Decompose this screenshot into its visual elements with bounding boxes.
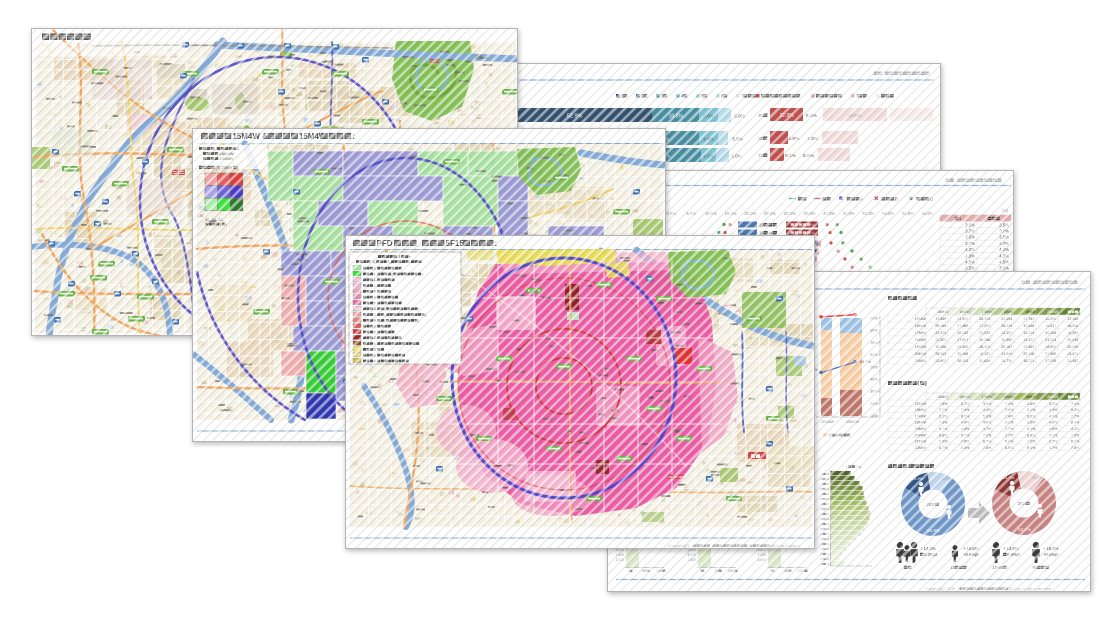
svg-text:6.5%: 6.5% [1071,440,1080,444]
svg-text:-40: -40 [198,214,203,218]
svg-text:2.7%: 2.7% [1049,440,1058,444]
svg-text:7.3%: 7.3% [807,136,819,142]
svg-text:24,894: 24,894 [1001,317,1012,321]
svg-text:500: 500 [714,569,720,573]
svg-text:26,129: 26,129 [979,317,990,321]
svg-text:7.8%: 7.8% [1071,402,1080,406]
svg-text:35.0%: 35.0% [803,211,815,216]
svg-text:7.4%: 7.4% [1005,408,1014,412]
svg-text:8.5%: 8.5% [1027,446,1036,450]
svg-text:C: C [930,197,934,202]
svg-text:4.7%: 4.7% [1049,446,1058,450]
svg-text:1000: 1000 [728,569,735,573]
svg-text:): ) [422,272,423,276]
svg-text:(: ( [917,381,919,387]
svg-text:4.0%: 4.0% [1049,414,1058,418]
svg-text:(: ( [846,465,848,469]
svg-text:B: B [895,197,898,202]
svg-text:65.9%: 65.9% [927,528,940,533]
svg-text:1.: 1. [374,278,377,282]
svg-text:24: 24 [826,492,830,496]
svg-text:0.9%pt: 0.9%pt [1007,552,1021,557]
svg-text:40.0%: 40.0% [823,211,835,216]
svg-text:24: 24 [826,532,830,536]
svg-text:1000: 1000 [656,569,663,573]
svg-text:2.: 2. [374,330,377,334]
svg-text:2.: 2. [374,336,377,340]
svg-text:8.5%: 8.5% [1027,421,1036,425]
svg-text:17M4W: 17M4W [915,414,928,418]
svg-text:9.7%: 9.7% [983,427,992,431]
svg-text:7.2%: 7.2% [1027,440,1036,444]
svg-text:52.9%: 52.9% [567,114,583,120]
svg-text:24,229: 24,229 [979,331,990,335]
svg-text:21M4W: 21M4W [915,440,928,444]
svg-text:6.7%: 6.7% [939,446,948,450]
svg-text:12,242: 12,242 [957,331,968,335]
svg-text:30%: 30% [870,390,878,394]
svg-text:21,914: 21,914 [957,317,968,321]
svg-text:8.: 8. [374,325,377,329]
svg-text:22,692: 22,692 [935,359,946,363]
svg-text:16,517: 16,517 [1045,324,1056,328]
svg-text:4.3%: 4.3% [999,253,1009,258]
svg-text:2.7%: 2.7% [1071,414,1080,418]
svg-text:7.7%: 7.7% [1005,427,1014,431]
svg-text:5.0%: 5.0% [686,211,696,216]
svg-text:5.4%: 5.4% [806,113,818,119]
svg-text:16M4W: 16M4W [915,408,928,412]
svg-text:4.6%: 4.6% [983,421,992,425]
svg-text:5.9%: 5.9% [732,137,742,142]
svg-text:11,260: 11,260 [1045,317,1056,321]
svg-text:0.0%: 0.0% [667,211,677,216]
svg-text:5.6%: 5.6% [803,153,815,159]
svg-text:3.5%: 3.5% [965,235,975,240]
svg-text:25.0%: 25.0% [764,211,776,216]
svg-text:7.3%: 7.3% [939,421,948,425]
svg-text:20: 20 [758,153,764,159]
svg-text:11,824: 11,824 [979,359,990,363]
svg-text:62.1%: 62.1% [1018,527,1031,532]
svg-text:6.: 6. [374,354,377,358]
svg-text:60%: 60% [870,353,878,357]
svg-text:30: 30 [758,136,764,142]
svg-text:3: 3 [908,464,911,470]
svg-text:17M4W: 17M4W [915,331,928,335]
svg-text:+0.5%pt: +0.5%pt [1043,552,1059,557]
svg-text:4.2%: 4.2% [965,247,975,252]
svg-text:18.3%: 18.3% [669,114,684,120]
svg-text:18,286: 18,286 [1067,324,1078,328]
svg-text:4.: 4. [374,359,377,363]
svg-text:5,000: 5,000 [758,553,766,557]
svg-text:7.4%: 7.4% [961,408,970,412]
svg-text:15,249: 15,249 [1067,338,1078,342]
svg-text:24: 24 [826,507,830,511]
svg-text:2.4%: 2.4% [939,440,948,444]
svg-text:4.8%: 4.8% [961,427,970,431]
svg-text:24: 24 [826,497,830,501]
svg-text:24: 24 [826,482,830,486]
svg-text:21,524: 21,524 [1045,338,1056,342]
svg-text:10,848: 10,848 [1023,324,1034,328]
svg-text:3.7%: 3.7% [999,241,1009,246]
svg-text:3.7%: 3.7% [965,241,975,246]
svg-text:24: 24 [826,537,830,541]
svg-text:24: 24 [826,517,830,521]
svg-text:4.0%: 4.0% [1049,421,1058,425]
svg-text:27,204: 27,204 [979,324,990,328]
svg-text:3.5%: 3.5% [999,222,1009,227]
svg-text:+ 14.3%: + 14.3% [920,546,936,551]
svg-text:6.5%: 6.5% [1005,446,1014,450]
svg-text:13,480: 13,480 [1067,317,1078,321]
svg-text:15,158: 15,158 [957,352,968,356]
svg-text:500: 500 [642,569,648,573]
svg-text:27,997: 27,997 [957,338,968,342]
svg-text:25,989: 25,989 [935,324,946,328]
svg-text:4.7%: 4.7% [961,433,970,437]
svg-text:20.0%: 20.0% [744,211,756,216]
svg-text:7.1%: 7.1% [1049,433,1058,437]
svg-text:14.9%: 14.9% [1003,475,1015,480]
svg-text:10,314: 10,314 [1023,331,1034,335]
svg-text:17,764: 17,764 [1023,317,1034,321]
svg-text:2.1%: 2.1% [939,414,948,418]
svg-text:1.: 1. [374,272,377,276]
svg-text:4.4%: 4.4% [1049,408,1058,412]
svg-text:+0.6%pt: +0.6%pt [963,552,979,557]
svg-text:(%): (%) [1001,208,1008,213]
svg-text:16,221: 16,221 [1023,359,1034,363]
svg-text:9.6%: 9.6% [1049,427,1058,431]
svg-text:3.4%: 3.4% [983,408,992,412]
svg-text:15,396: 15,396 [1067,331,1078,335]
svg-text:20,408: 20,408 [957,345,968,349]
svg-text:19M4W: 19M4W [915,427,928,431]
svg-text:8.0%: 8.0% [961,414,970,418]
svg-text:8.0%: 8.0% [703,114,713,119]
svg-text:7.9%: 7.9% [1071,433,1080,437]
svg-text:3.3%: 3.3% [1049,402,1058,406]
svg-text:24: 24 [826,542,830,546]
svg-text:15: 15 [828,434,832,438]
svg-text::: : [748,544,749,548]
svg-text:20M4W: 20M4W [915,433,928,437]
svg-text:14.9%: 14.9% [912,476,924,481]
svg-text::: : [710,544,711,548]
svg-text:24: 24 [826,562,830,566]
svg-text:6.: 6. [374,307,377,311]
svg-text:14,101: 14,101 [1001,331,1012,335]
svg-text:24: 24 [826,557,830,561]
svg-text:20,167: 20,167 [1001,345,1012,349]
svg-text:45.0%: 45.0% [843,211,855,216]
svg-text:22.9%: 22.9% [780,113,795,119]
svg-text:20M4W: 20M4W [915,352,928,356]
svg-text:18,859: 18,859 [935,317,946,321]
svg-text:24: 24 [826,547,830,551]
svg-text:4.5%: 4.5% [999,260,1009,265]
svg-text:6.4%: 6.4% [1027,427,1036,431]
svg-text:9.1%: 9.1% [703,154,713,159]
svg-text:10.5%: 10.5% [848,113,862,119]
svg-text:4.1%: 4.1% [1071,427,1080,431]
svg-text::3: :3 [397,254,400,259]
svg-text:4.: 4. [374,319,377,323]
svg-text:9.1%: 9.1% [785,153,797,159]
svg-text:27,906: 27,906 [1045,352,1056,356]
svg-text:24: 24 [826,527,830,531]
svg-text:20%: 20% [870,402,878,406]
svg-text:7.2%: 7.2% [939,408,948,412]
svg-text:5.: 5. [374,301,377,305]
svg-text:20M4W: 20M4W [846,420,859,424]
svg-text:24: 24 [826,502,830,506]
svg-text:9.6%: 9.6% [1027,414,1036,418]
svg-text:3.7%: 3.7% [999,229,1009,234]
svg-text:10%: 10% [870,414,878,418]
svg-text:15,738: 15,738 [1001,359,1012,363]
svg-text:+ 16.8%: + 16.8% [1043,546,1059,551]
svg-text:15M4W &: 15M4W & [232,132,268,141]
svg-text:3.5%: 3.5% [999,266,1009,271]
svg-text:40: 40 [758,113,764,119]
svg-text:3.7%: 3.7% [1005,433,1014,437]
svg-text:15M4W: 15M4W [821,420,834,424]
svg-text:20,289: 20,289 [1067,345,1078,349]
svg-text:9.2%: 9.2% [942,476,952,481]
svg-text:24: 24 [826,487,830,491]
svg-text:16,286: 16,286 [979,338,990,342]
svg-text:19M4W: 19M4W [915,345,928,349]
svg-text:7.8%: 7.8% [961,440,970,444]
svg-text:16,492: 16,492 [1001,338,1012,342]
svg-text:3.2%: 3.2% [1005,421,1014,425]
svg-text:4.: 4. [374,296,377,300]
svg-text:15M4W: 15M4W [915,317,928,321]
svg-text:All rights reserved.: All rights reserved. [771,544,801,548]
svg-text:22,263: 22,263 [935,331,946,335]
svg-text:17,939: 17,939 [1045,359,1056,363]
svg-text:24: 24 [826,552,830,556]
svg-text:7.8%: 7.8% [939,402,948,406]
svg-text:6.7%: 6.7% [961,402,970,406]
svg-text:28,355: 28,355 [1001,324,1012,328]
svg-text:21M4W: 21M4W [915,359,928,363]
svg-text:12.8%: 12.8% [786,136,800,142]
svg-text:2,000: 2,000 [758,558,766,562]
svg-text:7.5%: 7.5% [983,446,992,450]
svg-text:7.4%: 7.4% [1005,402,1014,406]
svg-text:2015: 2015 [927,502,937,507]
svg-text:24: 24 [826,522,830,526]
svg-text:(/0.25km: (/0.25km [215,165,232,170]
svg-text:15M4W: 15M4W [915,402,928,406]
svg-text:4.7%: 4.7% [939,427,948,431]
svg-text:30.0%: 30.0% [784,211,796,216]
svg-text:5,000: 5,000 [688,553,696,557]
svg-text:): ) [418,319,419,323]
svg-text:50.0%: 50.0% [863,211,875,216]
svg-text:6.8%: 6.8% [1027,433,1036,437]
svg-text:29: 29 [759,223,765,228]
svg-text:2,000: 2,000 [688,558,696,562]
svg-text:3.9%: 3.9% [983,402,992,406]
svg-text:10,563: 10,563 [957,359,968,363]
svg-text:6.: 6. [374,267,377,271]
svg-text:6.8%: 6.8% [961,446,970,450]
svg-text:Copyright(C): Copyright(C) [669,544,689,548]
svg-text:5.9%: 5.9% [983,414,992,418]
svg-text:%: % [811,222,815,227]
svg-text:19,463: 19,463 [1023,345,1034,349]
svg-text:24,452: 24,452 [1067,359,1078,363]
svg-text:2015: 2015 [1018,501,1028,506]
svg-text:50%: 50% [870,365,878,369]
svg-text:22M4W: 22M4W [915,446,928,450]
svg-text:19,122: 19,122 [1023,338,1034,342]
svg-text:5.9%: 5.9% [734,114,744,119]
svg-text:24: 24 [826,472,830,476]
svg-text:Copyright(C) 2015: Copyright(C) 2015 [926,587,955,591]
svg-text:9.4%: 9.4% [703,137,713,142]
svg-text:5.: 5. [374,348,377,352]
svg-text:64: 64 [836,434,840,438]
svg-text:5.0%: 5.0% [731,154,741,159]
svg-text:6.: 6. [374,342,377,346]
svg-text:+ 19.5%: + 19.5% [963,546,979,551]
svg-text:15.0%: 15.0% [725,211,737,216]
svg-text:1000: 1000 [798,569,805,573]
svg-text:2.6%: 2.6% [1027,402,1036,406]
svg-text:19,592: 19,592 [1045,345,1056,349]
svg-text:25,583: 25,583 [935,352,946,356]
svg-text:3.5%: 3.5% [965,222,975,227]
svg-text:70%: 70% [870,341,878,345]
svg-text:Co.,Ltd. All rights reserved.: Co.,Ltd. All rights reserved. [1009,587,1052,591]
svg-text:16M4W: 16M4W [915,324,928,328]
svg-text::15M4W: :15M4W [219,156,234,161]
svg-text:28,103: 28,103 [979,345,990,349]
svg-text:): ) [425,313,426,317]
svg-text:0.3%pt: 0.3%pt [924,552,938,557]
svg-text:18,166: 18,166 [935,345,946,349]
svg-text:80%: 80% [870,329,878,333]
svg-text:8.4%: 8.4% [1071,421,1080,425]
svg-text:4.3%: 4.3% [965,253,975,258]
svg-text:5,000: 5,000 [616,553,624,557]
svg-text:15-64: 15-64 [992,565,1003,570]
svg-text::%): :%) [855,465,861,469]
svg-text:): ) [418,307,419,311]
svg-text:4.2%: 4.2% [999,247,1009,252]
svg-text:24: 24 [826,477,830,481]
svg-text:6.7%: 6.7% [983,440,992,444]
svg-text:4.9%: 4.9% [961,421,970,425]
svg-text:2,000: 2,000 [616,558,624,562]
svg-text:500: 500 [784,569,790,573]
svg-text:4.: 4. [374,284,377,288]
svg-text:4.5%: 4.5% [965,260,975,265]
svg-text:17,489: 17,489 [957,324,968,328]
svg-text:+ 13.5%: + 13.5% [1003,546,1019,551]
svg-text:18,123: 18,123 [979,352,990,356]
svg-text:3.7%: 3.7% [965,229,975,234]
svg-text:7.5%: 7.5% [1071,446,1080,450]
svg-text:5.: 5. [374,313,377,317]
svg-text:6.4%: 6.4% [1005,440,1014,444]
svg-text:65.0%: 65.0% [922,211,934,216]
svg-text:16,269: 16,269 [1045,331,1056,335]
svg-text:55.0%: 55.0% [882,211,894,216]
svg-text:22,118: 22,118 [1023,352,1034,356]
svg-text:24: 24 [826,512,830,516]
svg-text:4.1%: 4.1% [1027,408,1036,412]
svg-text:23,474: 23,474 [1067,352,1078,356]
svg-text:18M4W: 18M4W [915,421,928,425]
svg-text:C: C [236,146,239,151]
svg-text:8.8%: 8.8% [939,433,948,437]
svg-text:21,965: 21,965 [1001,352,1012,356]
svg-text:7.2%: 7.2% [983,433,992,437]
svg-text:3.5%: 3.5% [999,235,1009,240]
svg-text:A: A [860,197,863,202]
svg-text:60.0%: 60.0% [902,211,914,216]
svg-text:40%: 40% [870,378,878,382]
svg-text:9.2%: 9.2% [1033,475,1043,480]
svg-text:9.2%: 9.2% [1071,408,1080,412]
svg-text::: : [352,132,355,141]
svg-text:4.: 4. [374,290,377,294]
svg-text:50.7%: 50.7% [860,360,871,364]
svg-text:40- 50- 60-: 40- 50- 60- [205,218,224,222]
svg-text:20,303: 20,303 [935,338,946,342]
svg-text::: : [215,146,216,151]
svg-text:10.0%: 10.0% [705,211,717,216]
svg-text:18M4W: 18M4W [915,338,928,342]
svg-text:3.5%: 3.5% [965,266,975,271]
svg-text:): ) [925,381,927,387]
svg-text:90%: 90% [870,317,878,321]
svg-text:7.4%: 7.4% [1005,414,1014,418]
